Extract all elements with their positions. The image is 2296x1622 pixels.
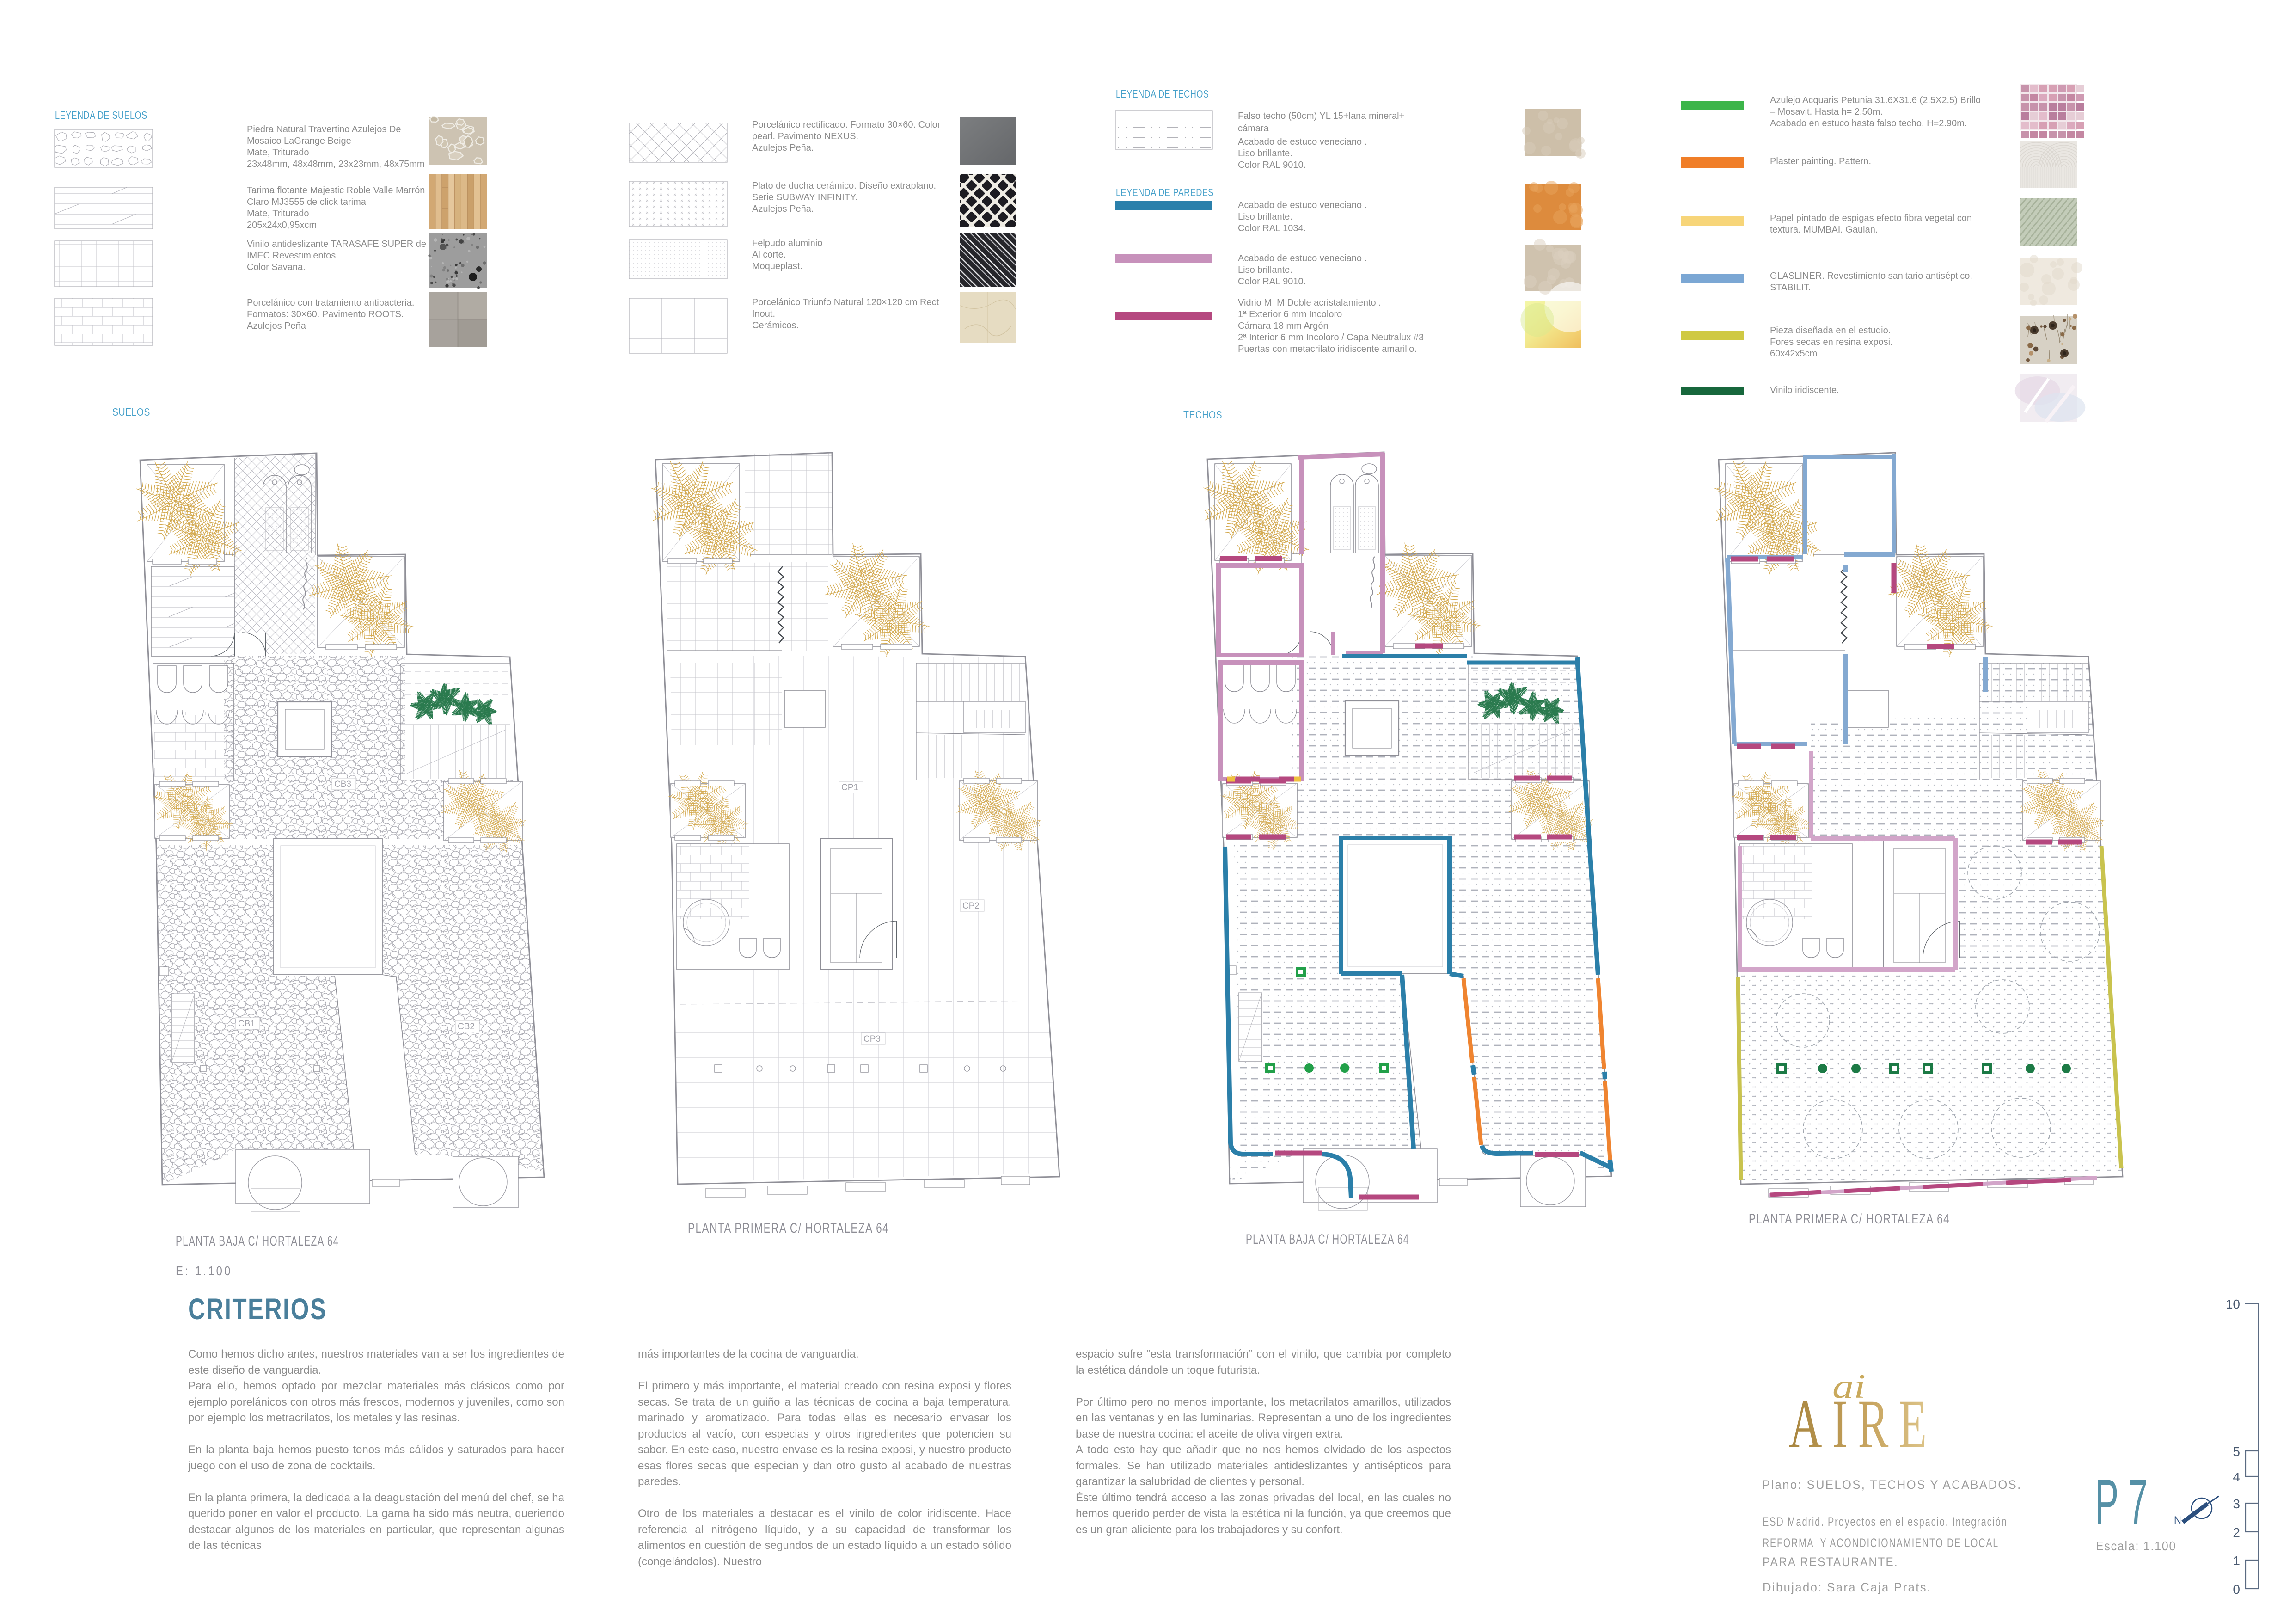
svg-text:CP1: CP1 xyxy=(841,783,858,793)
svg-text:CB1: CB1 xyxy=(238,1019,255,1029)
svg-text:CB2: CB2 xyxy=(458,1022,475,1032)
svg-text:CB3: CB3 xyxy=(334,780,351,789)
svg-text:CP3: CP3 xyxy=(863,1034,881,1044)
svg-text:CP2: CP2 xyxy=(962,901,980,911)
